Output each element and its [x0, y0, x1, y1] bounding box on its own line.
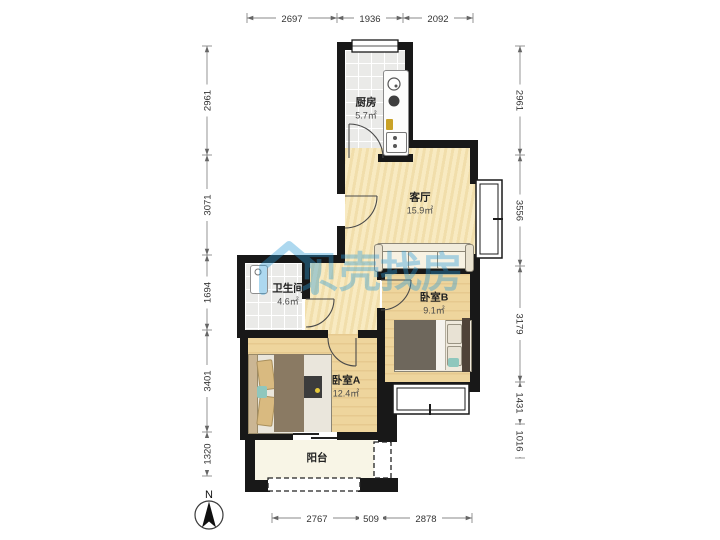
floorplan-canvas: 贝壳找房 2697 1936 2092 — [0, 0, 720, 540]
dim-label: 509 — [363, 514, 379, 525]
north-arrow-icon — [202, 502, 216, 528]
balcony-label: 阳台 — [307, 452, 328, 466]
dim-label: 1431 — [514, 392, 525, 413]
bedroom-b-label: 卧室B 9.1㎡ — [420, 291, 449, 316]
room-area: 12.4㎡ — [332, 388, 361, 400]
room-name: 厨房 — [355, 96, 377, 110]
compass-label: N — [205, 489, 213, 501]
bedroom-a-door-arc — [328, 338, 356, 366]
dim-label: 3071 — [203, 194, 214, 215]
bathroom-door-arc — [306, 299, 334, 327]
room-area: 5.7㎡ — [355, 110, 377, 122]
stove-burners-icon — [388, 78, 400, 107]
dim-label: 1694 — [203, 282, 214, 303]
kitchen-window — [352, 40, 398, 52]
bathroom-label: 卫生间 4.6㎡ — [272, 282, 304, 307]
watermark-text: 贝壳找房 — [298, 249, 462, 296]
dim-label: 1016 — [514, 430, 525, 451]
dim-label: 3556 — [514, 200, 525, 221]
living-room-bay-window — [476, 180, 503, 258]
room-area: 4.6㎡ — [272, 296, 304, 308]
plan-overlay: 贝壳找房 2697 1936 2092 — [0, 0, 720, 540]
entry-door-arc — [345, 196, 377, 228]
dim-label: 3401 — [203, 370, 214, 391]
dim-label: 2092 — [427, 14, 448, 25]
dim-label: 2961 — [514, 90, 525, 111]
bedroom-b-bay-window — [393, 384, 469, 415]
kitchen-label: 厨房 5.7㎡ — [355, 96, 377, 121]
room-name: 阳台 — [307, 452, 328, 466]
bedroom-a-label: 卧室A 12.4㎡ — [332, 374, 361, 399]
kitchen-door-arc — [349, 124, 383, 158]
dim-label: 3179 — [514, 313, 525, 334]
room-name: 客厅 — [407, 191, 434, 205]
room-name: 卧室B — [420, 291, 449, 305]
room-name: 卫生间 — [272, 282, 304, 296]
dim-label: 2878 — [415, 514, 436, 525]
balcony-window-dashed — [268, 442, 391, 491]
living-room-label: 客厅 15.9㎡ — [407, 191, 434, 216]
dim-label: 2961 — [203, 90, 214, 111]
dim-label: 1936 — [359, 14, 380, 25]
balcony-sliding-door — [293, 432, 337, 440]
room-area: 15.9㎡ — [407, 205, 434, 217]
north-compass: N — [195, 489, 223, 529]
dim-label: 2697 — [281, 14, 302, 25]
dim-label: 1320 — [203, 443, 214, 464]
room-area: 9.1㎡ — [420, 305, 449, 317]
dim-label: 2767 — [306, 514, 327, 525]
room-name: 卧室A — [332, 374, 361, 388]
